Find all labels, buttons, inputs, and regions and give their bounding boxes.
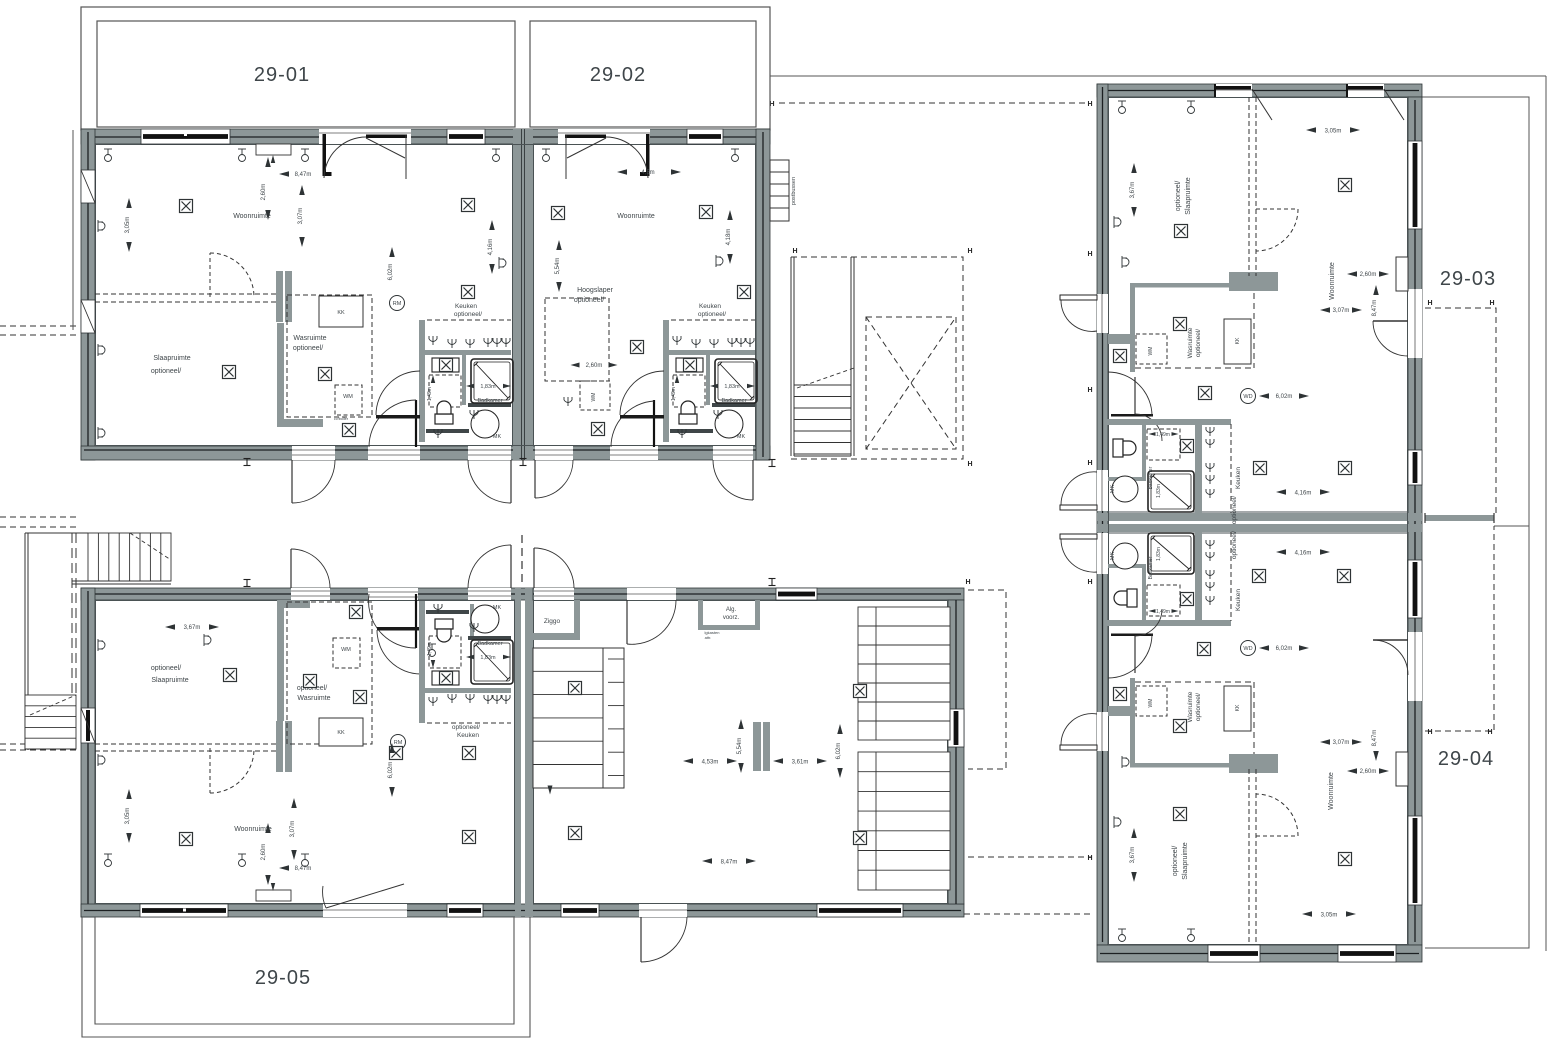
svg-text:KK: KK xyxy=(1235,337,1241,344)
svg-text:1,49m: 1,49m xyxy=(1156,432,1170,438)
svg-text:2,60m: 2,60m xyxy=(261,844,267,861)
svg-text:WM: WM xyxy=(341,647,351,653)
svg-text:optioneel/: optioneel/ xyxy=(1231,496,1238,524)
svg-text:4,16m: 4,16m xyxy=(1295,550,1312,556)
svg-text:Badkamer: Badkamer xyxy=(1148,556,1154,579)
svg-text:optioneel/: optioneel/ xyxy=(1195,329,1202,357)
svg-text:RM: RM xyxy=(394,740,403,746)
svg-text:WM: WM xyxy=(591,393,597,402)
svg-text:Slaapruimte: Slaapruimte xyxy=(151,677,188,684)
svg-text:KK: KK xyxy=(337,310,345,316)
svg-text:1,49m: 1,49m xyxy=(427,387,433,401)
svg-text:MK: MK xyxy=(493,605,502,611)
svg-text:Keuken: Keuken xyxy=(455,303,477,310)
svg-text:Slaapruimte: Slaapruimte xyxy=(1182,842,1189,879)
svg-text:6,02m: 6,02m xyxy=(836,743,842,760)
svg-text:1,49m: 1,49m xyxy=(671,387,677,401)
svg-text:H: H xyxy=(1087,460,1092,467)
svg-text:Ziggo: Ziggo xyxy=(544,618,561,625)
svg-text:2,60m: 2,60m xyxy=(1360,769,1377,775)
svg-text:4,18m: 4,18m xyxy=(726,229,732,246)
svg-text:H: H xyxy=(967,461,972,468)
svg-text:H: H xyxy=(1087,101,1092,108)
svg-text:2,60m: 2,60m xyxy=(1360,272,1377,278)
svg-text:Slaapruimte: Slaapruimte xyxy=(1185,177,1192,214)
svg-text:29-05: 29-05 xyxy=(255,967,311,989)
svg-text:1,83m: 1,83m xyxy=(1156,547,1162,561)
svg-text:3,07m: 3,07m xyxy=(1333,308,1350,314)
svg-text:1,83m: 1,83m xyxy=(480,655,496,661)
svg-text:Slaapruimte: Slaapruimte xyxy=(153,355,190,362)
svg-text:optioneel/: optioneel/ xyxy=(454,311,482,318)
svg-text:Wasruimte: Wasruimte xyxy=(293,335,326,342)
svg-text:6,02m: 6,02m xyxy=(388,264,394,281)
svg-text:optioneel/: optioneel/ xyxy=(293,345,323,352)
svg-text:H: H xyxy=(967,248,972,255)
svg-text:optioneel/: optioneel/ xyxy=(1195,693,1202,721)
svg-text:H: H xyxy=(1489,300,1494,307)
svg-text:1,49m: 1,49m xyxy=(1156,609,1170,615)
svg-text:optioneel/: optioneel/ xyxy=(698,311,726,318)
svg-text:3,67m: 3,67m xyxy=(1130,847,1136,864)
svg-text:WM: WM xyxy=(1148,699,1154,708)
svg-text:Wasruimte: Wasruimte xyxy=(1187,327,1194,358)
svg-text:4,16m: 4,16m xyxy=(1295,490,1312,496)
svg-text:3,05m: 3,05m xyxy=(125,217,131,234)
svg-text:Woonruimte: Woonruimte xyxy=(1329,262,1336,300)
svg-text:5,54m: 5,54m xyxy=(555,258,561,275)
svg-text:Wasruimte: Wasruimte xyxy=(297,695,330,702)
svg-text:Badkamer: Badkamer xyxy=(477,398,502,404)
svg-text:Keuken: Keuken xyxy=(457,732,479,739)
svg-text:6,02m: 6,02m xyxy=(1276,646,1293,652)
svg-text:WD: WD xyxy=(1243,394,1252,400)
svg-text:Keuken: Keuken xyxy=(699,303,721,310)
svg-text:1,83m: 1,83m xyxy=(1156,484,1162,498)
svg-text:optioneel/: optioneel/ xyxy=(1175,181,1182,211)
svg-text:3,07m: 3,07m xyxy=(298,208,304,225)
svg-text:1,49m: 1,49m xyxy=(427,642,433,656)
svg-text:MK: MK xyxy=(1110,552,1116,561)
svg-text:8,47m: 8,47m xyxy=(295,866,312,872)
svg-text:Alg.: Alg. xyxy=(726,607,737,613)
svg-text:3,05m: 3,05m xyxy=(1325,128,1342,134)
svg-text:postbussen: postbussen xyxy=(791,177,797,205)
svg-text:8,47m: 8,47m xyxy=(1372,730,1378,747)
svg-text:KK: KK xyxy=(1235,704,1241,711)
svg-text:optioneel/: optioneel/ xyxy=(1231,531,1238,559)
svg-text:H: H xyxy=(1427,300,1432,307)
svg-text:Keuken: Keuken xyxy=(1235,467,1242,489)
svg-text:optioneel/: optioneel/ xyxy=(151,368,181,375)
svg-text:8,47m: 8,47m xyxy=(1372,300,1378,317)
svg-text:1,83m: 1,83m xyxy=(724,384,740,390)
svg-text:4,16m: 4,16m xyxy=(488,239,494,256)
svg-text:H: H xyxy=(965,579,970,586)
svg-text:8,47m: 8,47m xyxy=(295,172,312,178)
svg-text:Badkamer: Badkamer xyxy=(1148,466,1154,489)
svg-text:MK: MK xyxy=(737,434,746,440)
svg-text:3,61m: 3,61m xyxy=(792,759,809,765)
svg-text:optioneel/: optioneel/ xyxy=(452,724,480,731)
svg-text:Badkamer: Badkamer xyxy=(721,398,746,404)
svg-text:Wasruimte: Wasruimte xyxy=(1187,691,1194,722)
svg-text:H: H xyxy=(1487,729,1492,736)
svg-text:6,02m: 6,02m xyxy=(1276,394,1293,400)
svg-text:WM: WM xyxy=(343,394,353,400)
svg-text:cv/boiler: cv/boiler xyxy=(334,417,349,421)
svg-text:optioneel/: optioneel/ xyxy=(151,665,181,672)
svg-text:3,05m: 3,05m xyxy=(125,808,131,825)
svg-text:29-04: 29-04 xyxy=(1438,748,1494,770)
svg-text:4,53m: 4,53m xyxy=(702,759,719,765)
svg-text:H: H xyxy=(1087,579,1092,586)
svg-text:voorz.: voorz. xyxy=(723,615,740,621)
svg-text:3,05m: 3,05m xyxy=(1321,912,1338,918)
svg-text:Badkamer: Badkamer xyxy=(477,641,502,647)
svg-text:MK: MK xyxy=(1110,485,1116,494)
svg-text:3,07m: 3,07m xyxy=(1333,740,1350,746)
svg-text:Woonruimte: Woonruimte xyxy=(233,213,271,220)
svg-text:H: H xyxy=(792,248,797,255)
svg-text:Woonruimte: Woonruimte xyxy=(1328,772,1335,810)
svg-text:29-03: 29-03 xyxy=(1440,268,1496,290)
svg-text:H: H xyxy=(1087,387,1092,394)
svg-text:8,47m: 8,47m xyxy=(721,859,738,865)
svg-text:3,07m: 3,07m xyxy=(290,821,296,838)
svg-text:3,67m: 3,67m xyxy=(184,625,201,631)
svg-text:H: H xyxy=(1427,729,1432,736)
svg-text:Hoogslaper: Hoogslaper xyxy=(577,287,613,294)
svg-text:RM: RM xyxy=(393,301,402,307)
svg-text:5,54m: 5,54m xyxy=(737,738,743,755)
svg-text:optioneel/: optioneel/ xyxy=(1172,846,1179,876)
svg-text:3,67m: 3,67m xyxy=(1130,182,1136,199)
svg-text:29-02: 29-02 xyxy=(590,64,646,86)
svg-text:KK: KK xyxy=(337,730,345,736)
svg-text:WD: WD xyxy=(1243,646,1252,652)
svg-text:H: H xyxy=(1087,251,1092,258)
svg-text:WM: WM xyxy=(1148,347,1154,356)
svg-text:Keuken: Keuken xyxy=(1235,589,1242,611)
svg-text:2,60m: 2,60m xyxy=(586,363,603,369)
svg-text:attr.: attr. xyxy=(705,635,712,640)
svg-text:4,5m: 4,5m xyxy=(641,170,654,176)
svg-text:29-01: 29-01 xyxy=(254,64,310,86)
svg-text:6,02m: 6,02m xyxy=(388,762,394,779)
svg-text:1,83m: 1,83m xyxy=(480,384,496,390)
svg-text:Woonruimte: Woonruimte xyxy=(617,213,655,220)
svg-text:2,60m: 2,60m xyxy=(261,184,267,201)
svg-text:H: H xyxy=(1087,855,1092,862)
svg-text:MK: MK xyxy=(493,434,502,440)
